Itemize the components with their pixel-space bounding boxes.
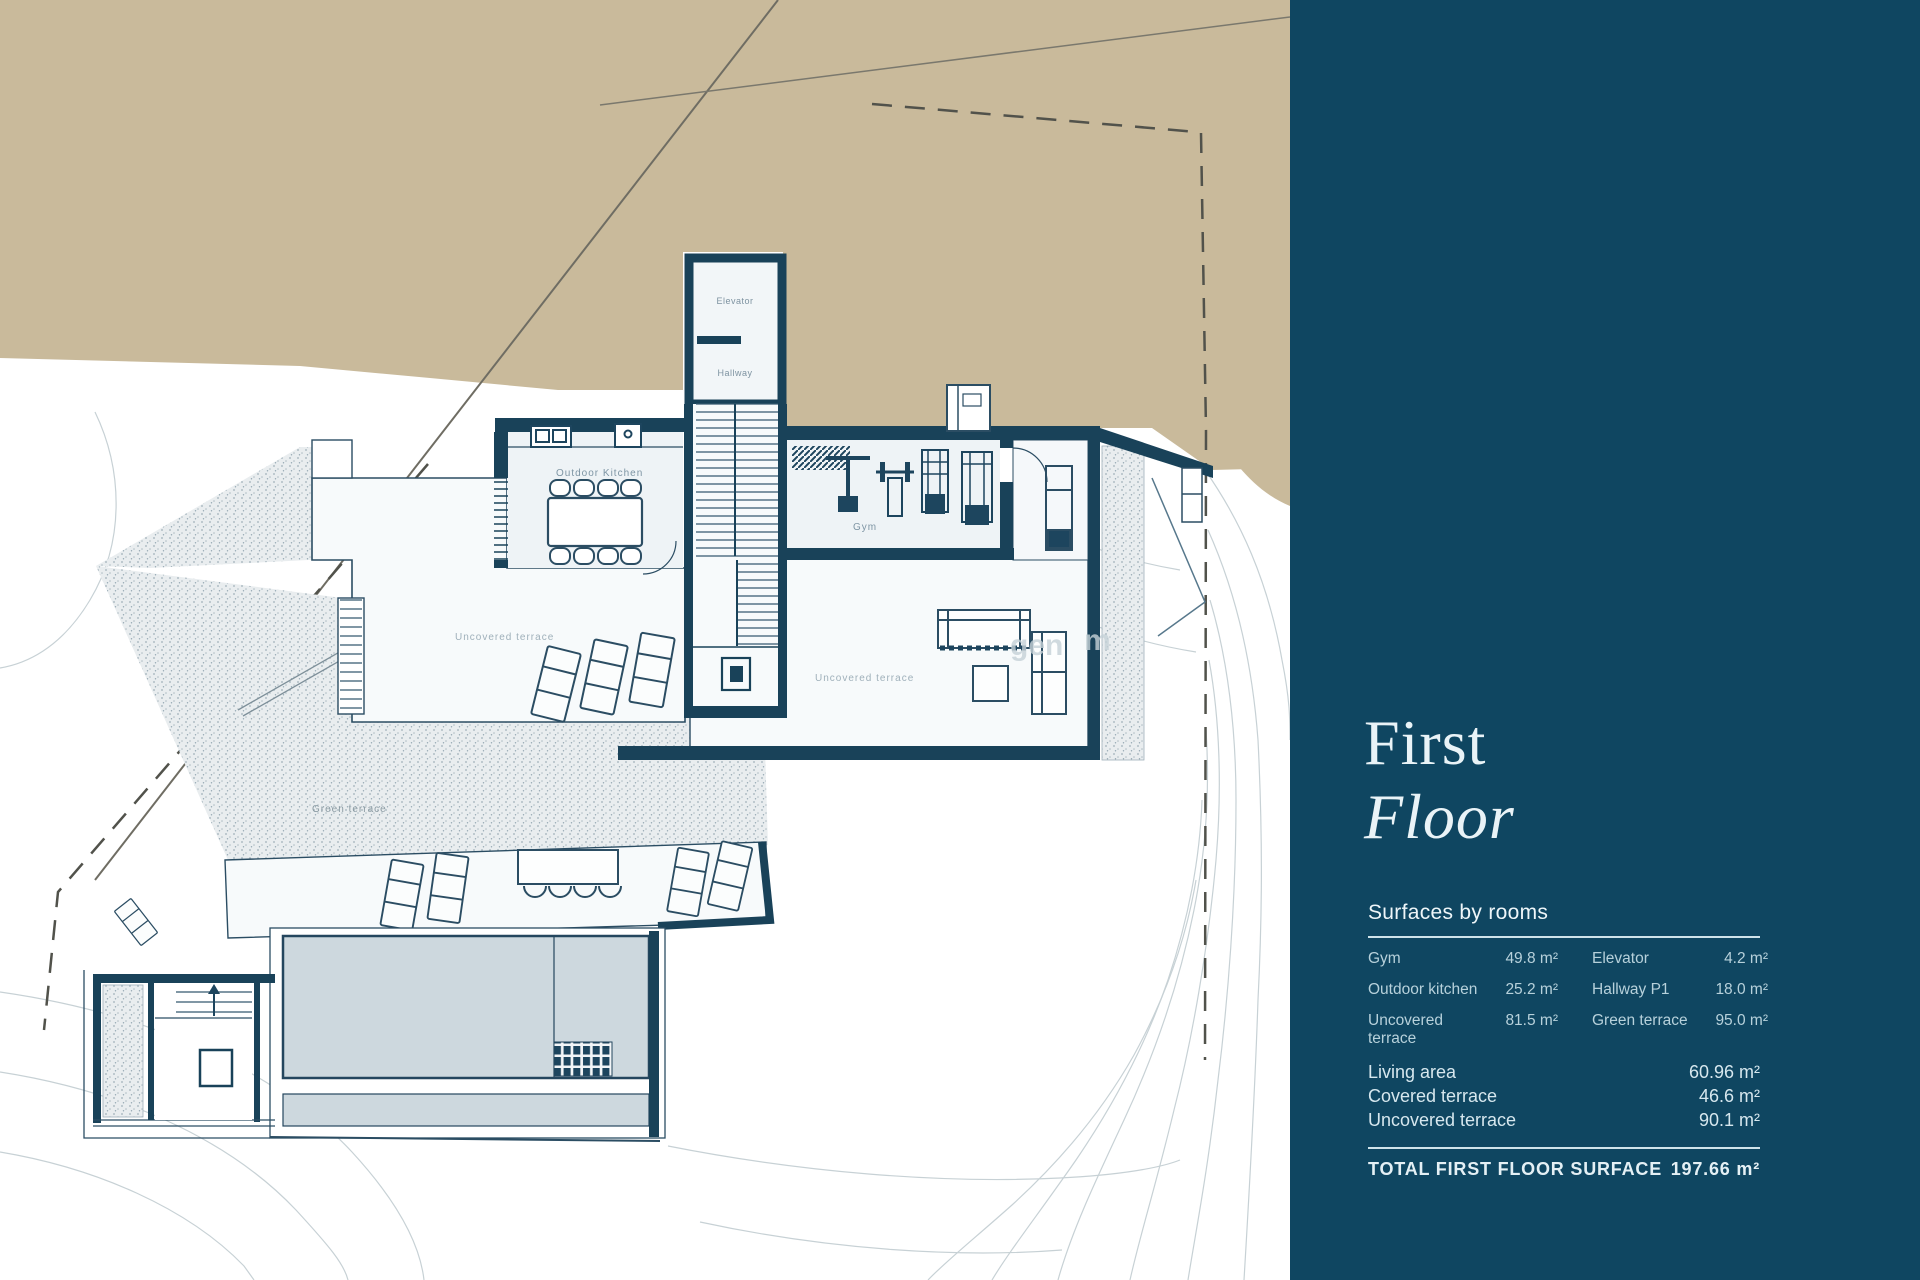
green-terrace-label: Green terrace (312, 804, 387, 815)
room-surfaces-table: Gym 49.8 m² Outdoor kitchen 25.2 m² Unco… (1368, 950, 1768, 1048)
summary-name: Covered terrace (1368, 1084, 1497, 1108)
room-name: Gym (1368, 950, 1495, 968)
surface-summary: Living area 60.96 m² Covered terrace 46.… (1368, 1060, 1760, 1132)
pool-house (93, 974, 275, 1126)
watermark-fragment-2: m (1084, 624, 1111, 657)
outdoor-kitchen-room: Outdoor Kitchen (494, 418, 690, 574)
total-surface-row: TOTAL FIRST FLOOR SURFACE 197.66 m² (1368, 1147, 1760, 1180)
info-sidebar: First Floor Surfaces by rooms Gym 49.8 m… (1290, 0, 1920, 1280)
summary-area: 46.6 m² (1699, 1084, 1760, 1108)
total-label: TOTAL FIRST FLOOR SURFACE (1368, 1159, 1662, 1180)
planter-strip (1102, 446, 1144, 760)
summary-row: Uncovered terrace 90.1 m² (1368, 1108, 1760, 1132)
elevator-tower: Elevator Hallway (684, 258, 787, 718)
page-title-line1: First (1364, 706, 1515, 780)
watermark-fragment-1: gen (1010, 629, 1063, 662)
utility-box-east (1182, 468, 1202, 522)
floorplan-page: Green terrace Uncovered terr (0, 0, 1920, 1280)
pool-overflow-channel (283, 1094, 649, 1126)
kitchen-north-wall (495, 418, 690, 432)
room-name: Elevator (1592, 950, 1705, 968)
pool-grate (554, 1042, 612, 1076)
room-surfaces-column-2: Elevator 4.2 m² Hallway P1 18.0 m² Green… (1592, 950, 1768, 1048)
summary-area: 60.96 m² (1689, 1060, 1760, 1084)
outdoor-kitchen-label: Outdoor Kitchen (556, 468, 643, 479)
page-title-line2: Floor (1364, 780, 1515, 854)
summary-name: Living area (1368, 1060, 1456, 1084)
room-area: 95.0 m² (1715, 1012, 1768, 1030)
room-area: 81.5 m² (1505, 1012, 1558, 1048)
gym-north-wall (770, 426, 1100, 440)
outdoor-dining-table (518, 850, 618, 884)
summary-area: 90.1 m² (1699, 1108, 1760, 1132)
uncovered-terrace-right-label: Uncovered terrace (815, 673, 914, 684)
pool-east-wall (649, 931, 659, 1137)
room-area: 25.2 m² (1505, 981, 1558, 999)
gym-south-wall (770, 548, 1014, 560)
terrace-south-wall (618, 746, 1100, 760)
garden-stairs (338, 598, 364, 714)
summary-row: Living area 60.96 m² (1368, 1060, 1760, 1084)
uncovered-terrace-left-label: Uncovered terrace (455, 632, 554, 643)
gym-label: Gym (853, 522, 877, 533)
room-surfaces-column-1: Gym 49.8 m² Outdoor kitchen 25.2 m² Unco… (1368, 950, 1558, 1048)
room-name: Uncovered terrace (1368, 1012, 1495, 1048)
watermark: gen m (1010, 624, 1111, 662)
total-value: 197.66 m² (1671, 1159, 1760, 1180)
room-name: Outdoor kitchen (1368, 981, 1495, 999)
room-name: Hallway P1 (1592, 981, 1705, 999)
elevator-label: Elevator (716, 296, 753, 306)
summary-name: Uncovered terrace (1368, 1108, 1516, 1132)
room-area: 49.8 m² (1505, 950, 1558, 968)
building-east-wall (1088, 440, 1100, 760)
hallway-label: Hallway (717, 368, 752, 378)
room-area: 4.2 m² (1715, 950, 1768, 968)
room-area: 18.0 m² (1715, 981, 1768, 999)
site-plan-drawing: Green terrace Uncovered terr (0, 0, 1290, 1280)
summary-row: Covered terrace 46.6 m² (1368, 1084, 1760, 1108)
room-name: Green terrace (1592, 1012, 1705, 1030)
page-title: First Floor (1364, 706, 1515, 854)
utility-box-north (947, 385, 990, 431)
surfaces-section-title: Surfaces by rooms (1368, 901, 1760, 938)
